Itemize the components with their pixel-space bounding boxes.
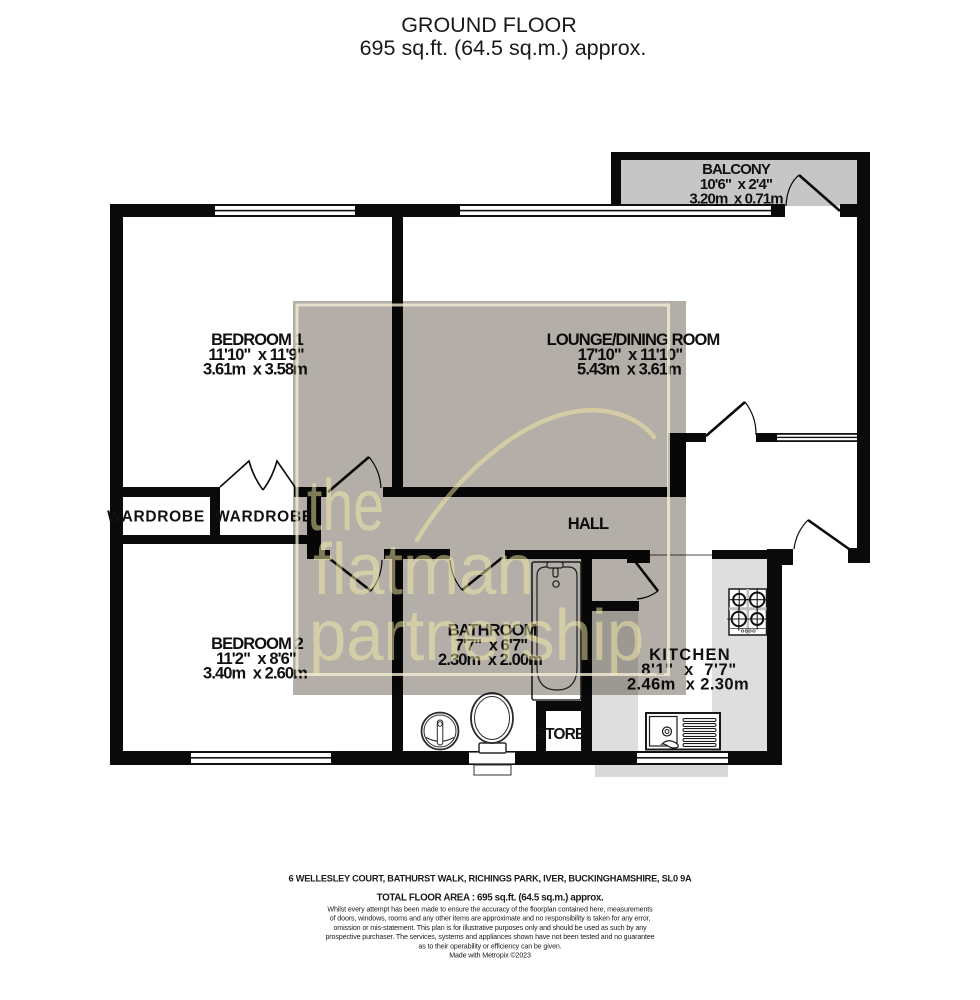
svg-text:695 sq.ft. (64.5 sq.m.) approx: 695 sq.ft. (64.5 sq.m.) approx. — [360, 36, 647, 60]
svg-text:WARDROBE: WARDROBE — [107, 509, 205, 526]
svg-text:of doors, windows, rooms and a: of doors, windows, rooms and any other i… — [330, 915, 651, 923]
svg-text:GROUND FLOOR: GROUND FLOOR — [401, 13, 577, 37]
svg-text:3.40m x 2.60m: 3.40m x 2.60m — [203, 665, 307, 683]
svg-text:3.61m x 3.58m: 3.61m x 3.58m — [203, 361, 307, 379]
svg-text:Whilst every attempt has been: Whilst every attempt has been made to en… — [327, 906, 653, 914]
svg-text:partnership: partnership — [309, 596, 644, 676]
svg-text:prospective purchaser. The ser: prospective purchaser. The services, sys… — [325, 933, 654, 941]
svg-text:Made with Metropix ©2023: Made with Metropix ©2023 — [449, 952, 531, 960]
svg-text:TOTAL FLOOR AREA : 695 sq.ft.: TOTAL FLOOR AREA : 695 sq.ft. (64.5 sq.m… — [377, 893, 604, 904]
svg-text:as to their operability or eff: as to their operability or efficiency ca… — [418, 942, 561, 950]
svg-text:omission or mis-statement. Thi: omission or mis-statement. This plan is … — [333, 924, 647, 932]
svg-text:6 WELLESLEY COURT, BATHURST WA: 6 WELLESLEY COURT, BATHURST WALK, RICHIN… — [289, 874, 693, 884]
svg-text:STORE: STORE — [536, 726, 585, 743]
svg-text:3.20m x 0.71m: 3.20m x 0.71m — [689, 191, 783, 208]
